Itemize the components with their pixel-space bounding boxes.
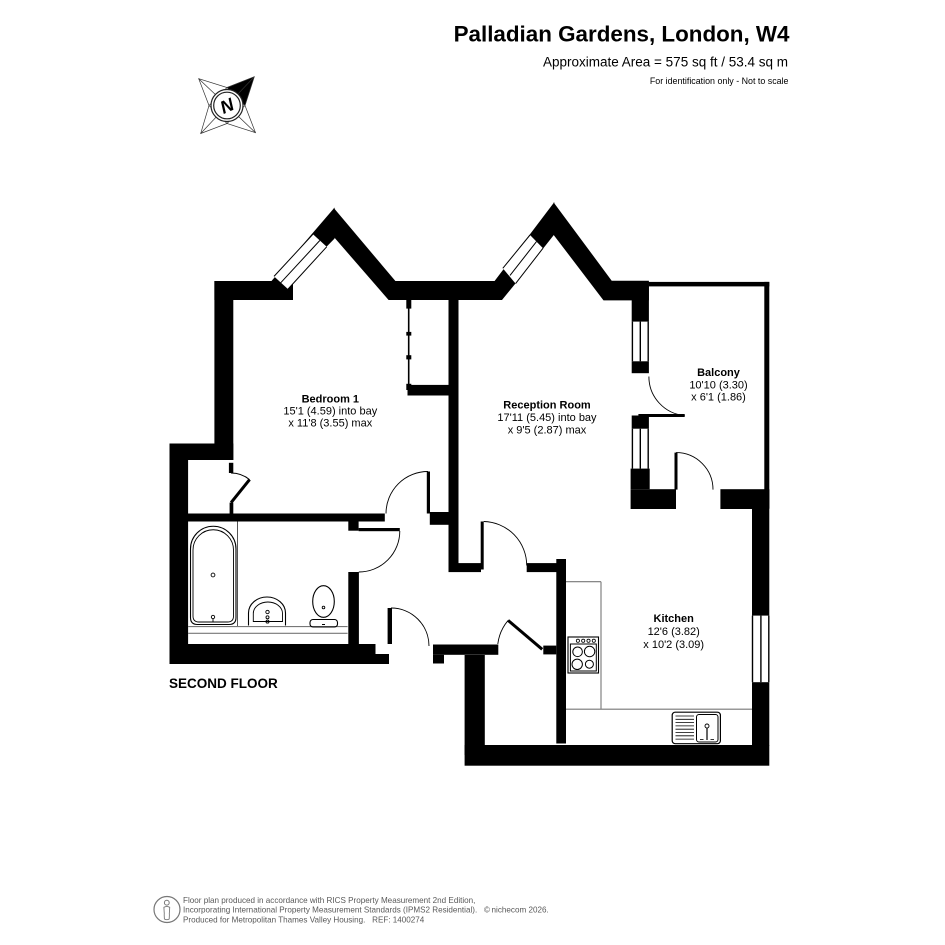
svg-text:For identification only - Not: For identification only - Not to scale: [650, 76, 789, 86]
svg-text:17'11 (5.45) into bay: 17'11 (5.45) into bay: [497, 412, 597, 424]
svg-text:Approximate Area = 575 sq ft /: Approximate Area = 575 sq ft / 53.4 sq m: [543, 55, 788, 70]
svg-text:SECOND FLOOR: SECOND FLOOR: [169, 676, 278, 691]
svg-text:Incorporating International Pr: Incorporating International Property Mea…: [183, 906, 549, 915]
svg-text:Kitchen: Kitchen: [654, 613, 695, 625]
svg-text:Balcony: Balcony: [697, 367, 741, 379]
svg-text:Floor plan produced in accorda: Floor plan produced in accordance with R…: [183, 896, 475, 905]
svg-text:x 6'1 (1.86): x 6'1 (1.86): [691, 392, 746, 404]
svg-text:Produced for Metropolitan Tham: Produced for Metropolitan Thames Valley …: [183, 915, 425, 924]
svg-text:10'10 (3.30): 10'10 (3.30): [689, 380, 747, 392]
svg-text:x 10'2 (3.09): x 10'2 (3.09): [643, 639, 704, 651]
svg-text:Palladian Gardens, London, W4: Palladian Gardens, London, W4: [454, 22, 790, 47]
svg-text:Reception Room: Reception Room: [503, 400, 591, 412]
svg-text:x 9'5 (2.87) max: x 9'5 (2.87) max: [508, 425, 587, 437]
svg-text:Bedroom 1: Bedroom 1: [302, 394, 359, 406]
svg-text:x 11'8 (3.55) max: x 11'8 (3.55) max: [288, 418, 372, 430]
svg-text:12'6 (3.82): 12'6 (3.82): [648, 626, 700, 638]
svg-text:15'1 (4.59) into bay: 15'1 (4.59) into bay: [283, 406, 377, 418]
